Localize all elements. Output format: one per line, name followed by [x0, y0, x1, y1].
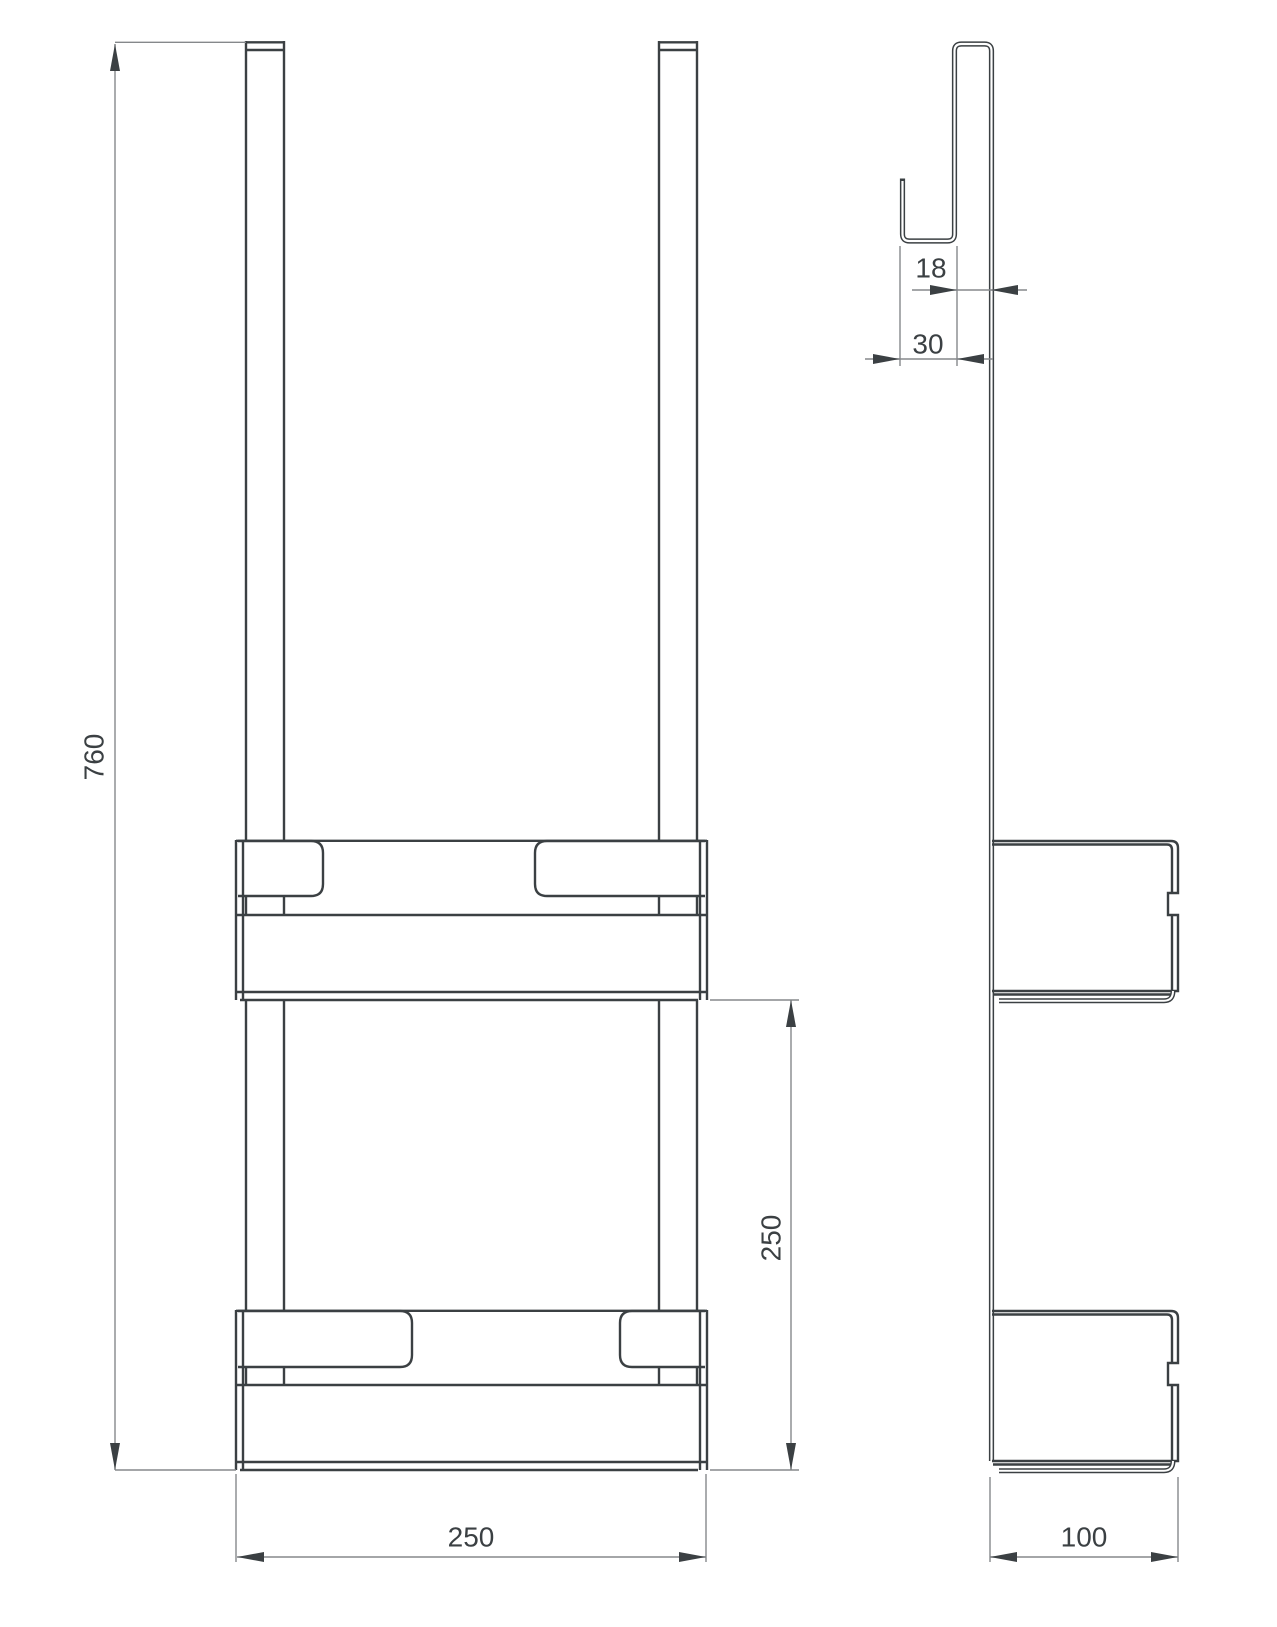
- arrow-760-bottom: [110, 1443, 120, 1470]
- dim-label-overall-height: 760: [79, 734, 110, 781]
- lower-basket-tab-right: [620, 1311, 705, 1367]
- upper-basket-tab-right: [535, 841, 705, 896]
- arrow-100-left: [990, 1552, 1017, 1562]
- lower-basket-outline: [236, 1310, 707, 1470]
- dim-label-shelf-spacing: 250: [756, 1215, 787, 1262]
- arrow-18-left: [930, 285, 957, 295]
- front-view: [236, 41, 707, 1470]
- lower-basket-tab-left: [238, 1311, 412, 1367]
- upper-basket-tab-left: [238, 841, 323, 896]
- right-rail: [659, 41, 697, 1385]
- arrow-760-top: [110, 44, 120, 71]
- dim-label-hook-width: 30: [912, 329, 943, 360]
- dimension-lines: [115, 42, 1178, 1562]
- drawing-canvas: 760 250 250 100 18 30: [0, 0, 1277, 1627]
- upper-basket-outline: [236, 840, 707, 1000]
- dim-760-lines: [115, 42, 246, 1470]
- arrow-250h-left: [237, 1552, 264, 1562]
- dimension-arrows: [110, 44, 1178, 1562]
- upper-basket-front: [236, 840, 707, 1000]
- dim-label-width: 250: [448, 1522, 495, 1553]
- technical-drawing: 760 250 250 100 18 30: [0, 0, 1277, 1627]
- arrow-100-right: [1151, 1552, 1178, 1562]
- arrow-250v-top: [786, 1000, 796, 1027]
- dim-label-depth: 100: [1061, 1522, 1108, 1553]
- arrow-30-left: [873, 354, 900, 364]
- arrow-18-right: [991, 285, 1018, 295]
- arrow-250v-bottom: [786, 1443, 796, 1470]
- dim-label-hook-opening: 18: [915, 253, 946, 284]
- dimension-labels: 760 250 250 100 18 30: [79, 253, 1108, 1553]
- left-rail: [246, 41, 284, 1385]
- arrow-30-right: [957, 354, 984, 364]
- arrow-250h-right: [679, 1552, 706, 1562]
- lower-basket-side: [992, 1311, 1178, 1471]
- upper-basket-side: [992, 841, 1178, 1001]
- lower-basket-front: [236, 1310, 707, 1470]
